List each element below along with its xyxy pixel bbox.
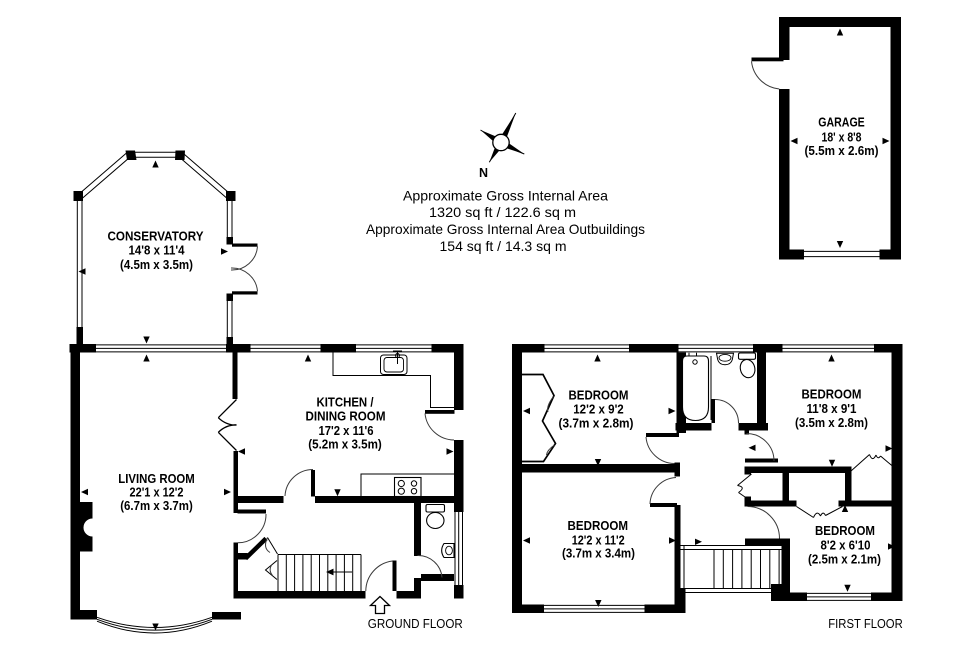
- svg-text:(5.5m x 2.6m): (5.5m x 2.6m): [805, 143, 879, 158]
- svg-text:(4.5m x 3.5m): (4.5m x 3.5m): [120, 257, 193, 272]
- svg-text:154 sq ft / 14.3 sq m: 154 sq ft / 14.3 sq m: [440, 238, 567, 254]
- svg-text:14'8 x 11'4: 14'8 x 11'4: [129, 242, 186, 257]
- svg-text:BEDROOM: BEDROOM: [802, 387, 862, 402]
- svg-text:12'2 x 9'2: 12'2 x 9'2: [573, 402, 624, 417]
- svg-text:18' x 8'8: 18' x 8'8: [822, 129, 862, 144]
- svg-text:KITCHEN /: KITCHEN /: [317, 395, 374, 410]
- svg-text:Approximate Gross Internal Are: Approximate Gross Internal Area: [403, 187, 608, 203]
- svg-text:GROUND FLOOR: GROUND FLOOR: [368, 616, 463, 631]
- svg-text:(3.5m x 2.8m): (3.5m x 2.8m): [795, 415, 868, 430]
- svg-text:(2.5m x 2.1m): (2.5m x 2.1m): [808, 552, 881, 567]
- svg-text:(6.7m x 3.7m): (6.7m x 3.7m): [120, 498, 193, 513]
- svg-text:FIRST FLOOR: FIRST FLOOR: [828, 616, 903, 631]
- svg-text:N: N: [479, 166, 488, 180]
- svg-text:(3.7m x 3.4m): (3.7m x 3.4m): [562, 546, 635, 561]
- svg-text:BEDROOM: BEDROOM: [815, 523, 875, 538]
- svg-text:GARAGE: GARAGE: [818, 115, 865, 130]
- svg-text:Approximate Gross Internal Are: Approximate Gross Internal Area Outbuild…: [366, 221, 645, 237]
- svg-text:BEDROOM: BEDROOM: [569, 388, 629, 403]
- svg-text:1320 sq ft / 122.6 sq m: 1320 sq ft / 122.6 sq m: [429, 204, 576, 220]
- svg-text:17'2 x 11'6: 17'2 x 11'6: [319, 423, 374, 438]
- svg-text:11'8 x 9'1: 11'8 x 9'1: [807, 401, 857, 416]
- svg-text:(3.7m x 2.8m): (3.7m x 2.8m): [559, 415, 634, 430]
- svg-text:BEDROOM: BEDROOM: [568, 518, 629, 533]
- svg-text:DINING ROOM: DINING ROOM: [306, 409, 386, 424]
- svg-text:(5.2m x 3.5m): (5.2m x 3.5m): [308, 437, 382, 452]
- svg-text:CONSERVATORY: CONSERVATORY: [108, 228, 204, 243]
- svg-text:8'2 x 6'10: 8'2 x 6'10: [821, 538, 871, 553]
